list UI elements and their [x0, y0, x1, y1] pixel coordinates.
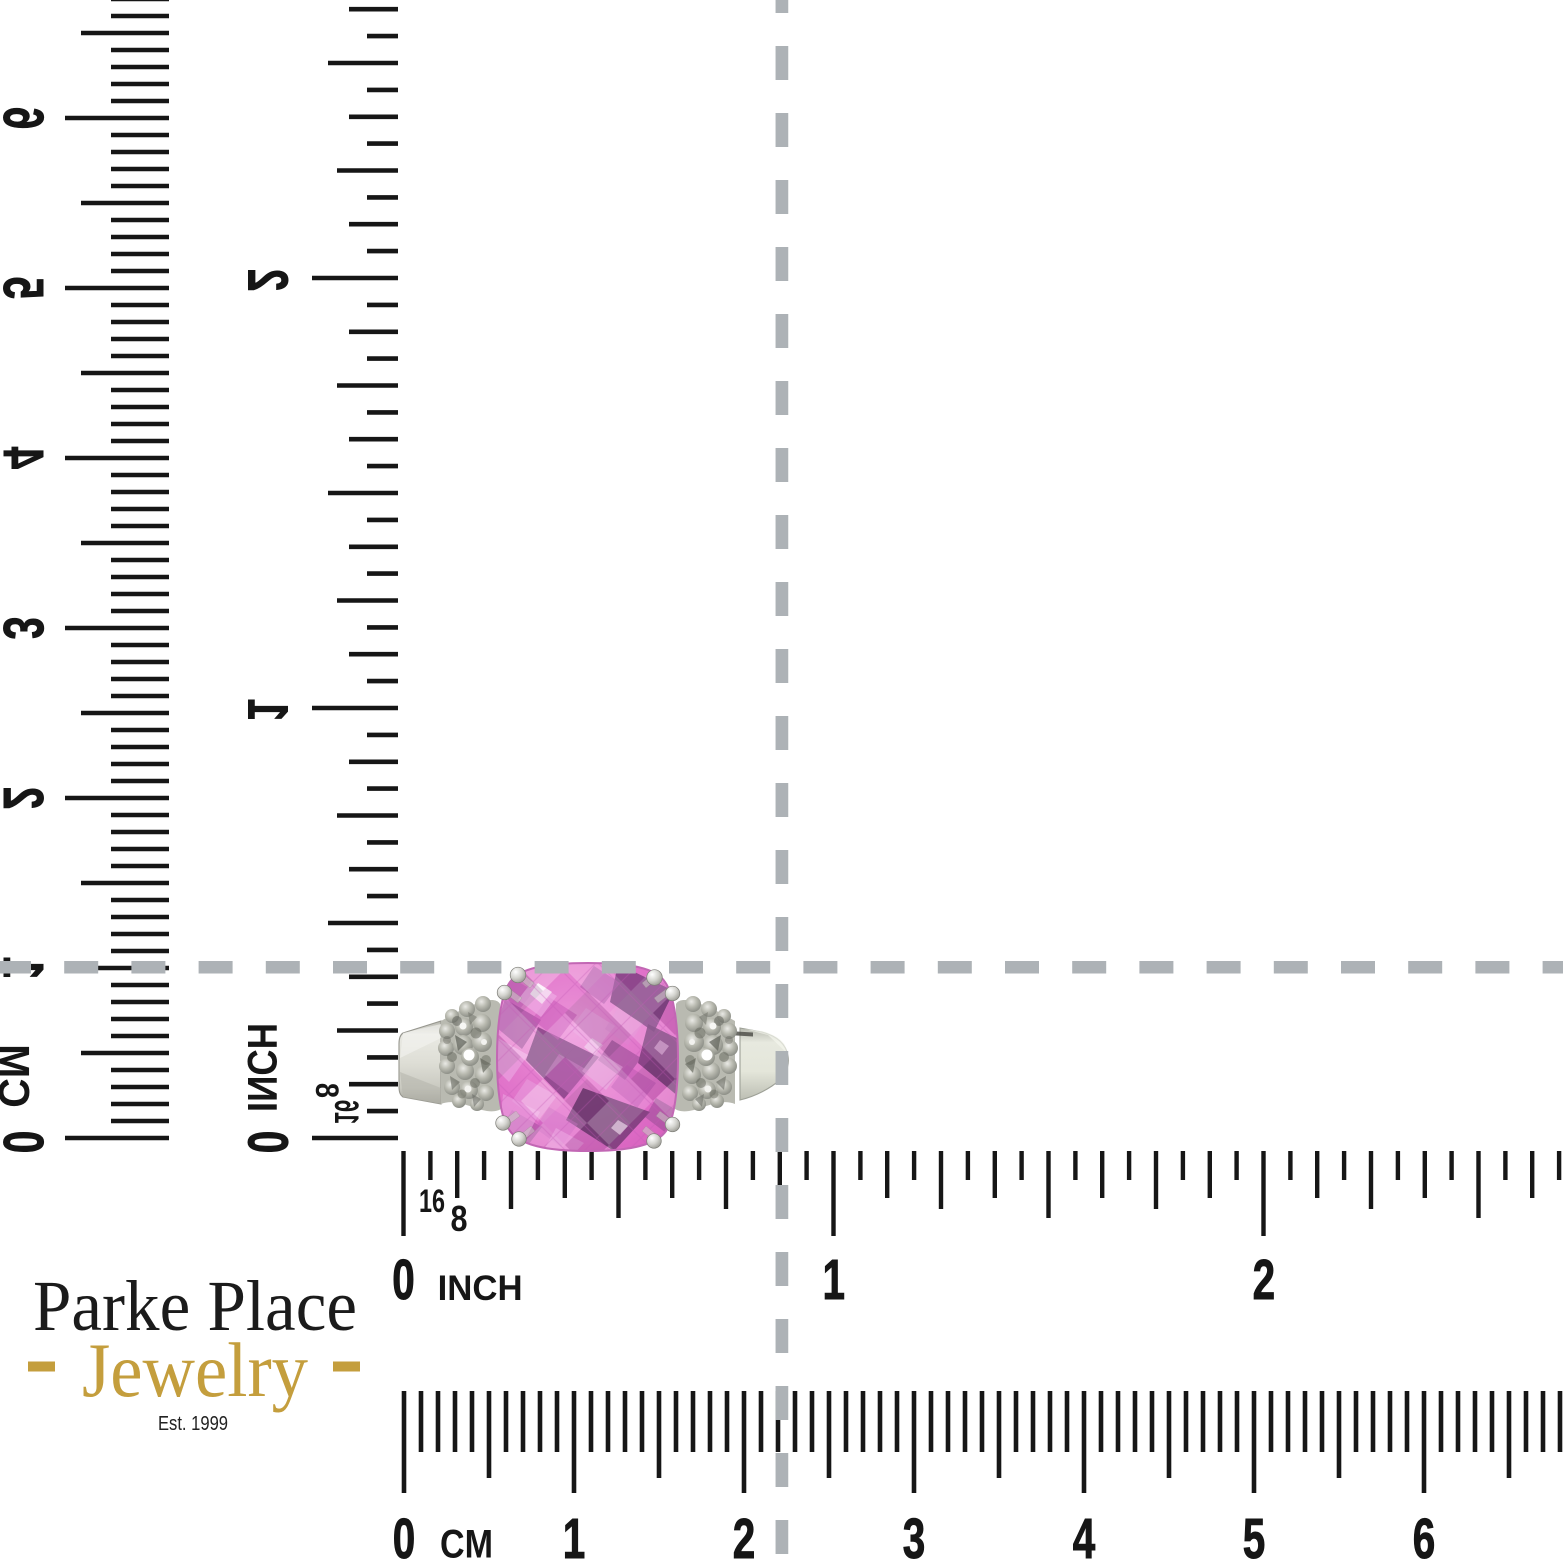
- svg-text:0: 0: [392, 1248, 415, 1311]
- svg-text:3: 3: [903, 1507, 926, 1563]
- svg-text:5: 5: [1243, 1507, 1266, 1563]
- svg-text:6: 6: [1413, 1507, 1436, 1563]
- svg-text:Jewelry: Jewelry: [82, 1327, 308, 1413]
- svg-text:1: 1: [563, 1507, 586, 1563]
- svg-text:Est. 1999: Est. 1999: [158, 1413, 228, 1435]
- svg-text:6: 6: [0, 107, 55, 130]
- svg-text:8: 8: [308, 1083, 344, 1098]
- svg-text:1: 1: [822, 1248, 845, 1311]
- svg-text:16: 16: [419, 1183, 445, 1218]
- svg-text:4: 4: [1073, 1507, 1096, 1563]
- svg-text:2: 2: [1253, 1248, 1276, 1311]
- svg-text:4: 4: [0, 446, 55, 469]
- svg-text:5: 5: [0, 277, 55, 300]
- svg-text:0: 0: [236, 1131, 299, 1154]
- svg-text:CM: CM: [440, 1523, 493, 1563]
- svg-text:0: 0: [393, 1507, 416, 1563]
- svg-text:0: 0: [0, 1131, 55, 1154]
- svg-text:1: 1: [236, 699, 299, 722]
- svg-text:8: 8: [450, 1200, 467, 1240]
- svg-text:2: 2: [733, 1507, 756, 1563]
- svg-text:16: 16: [327, 1100, 365, 1125]
- svg-text:2: 2: [236, 269, 299, 292]
- svg-text:3: 3: [0, 617, 55, 640]
- svg-text:CM: CM: [0, 1044, 37, 1108]
- svg-text:2: 2: [0, 787, 55, 810]
- svg-text:INCH: INCH: [438, 1269, 523, 1308]
- svg-text:INCH: INCH: [238, 1023, 285, 1112]
